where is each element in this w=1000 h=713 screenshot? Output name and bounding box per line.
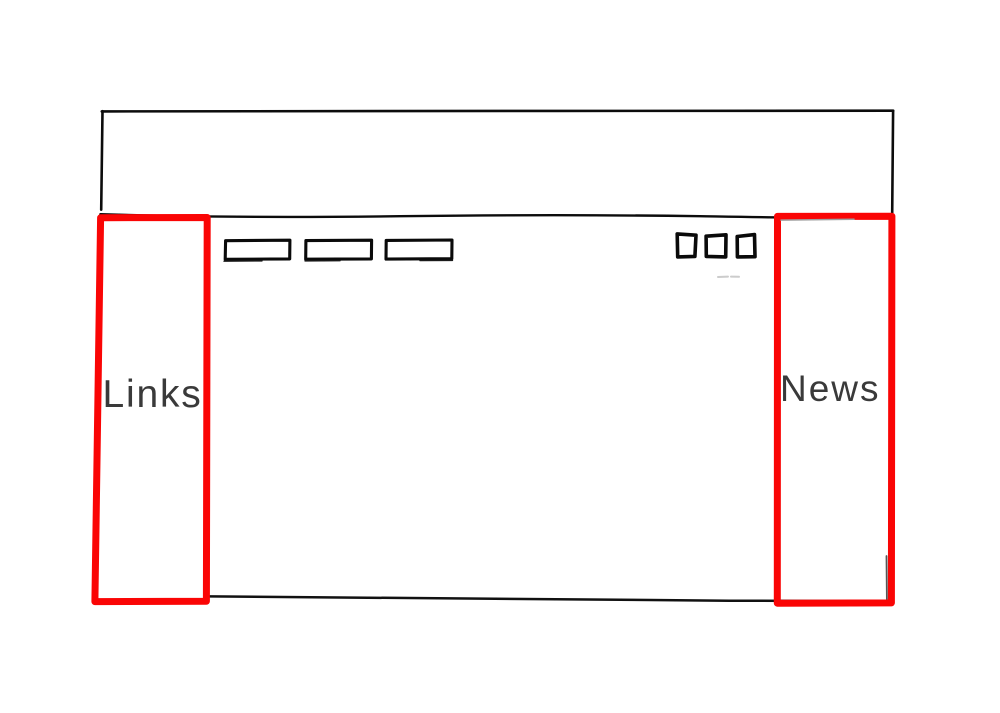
svg-text:News: News bbox=[780, 368, 881, 409]
svg-text:Links: Links bbox=[103, 373, 203, 416]
